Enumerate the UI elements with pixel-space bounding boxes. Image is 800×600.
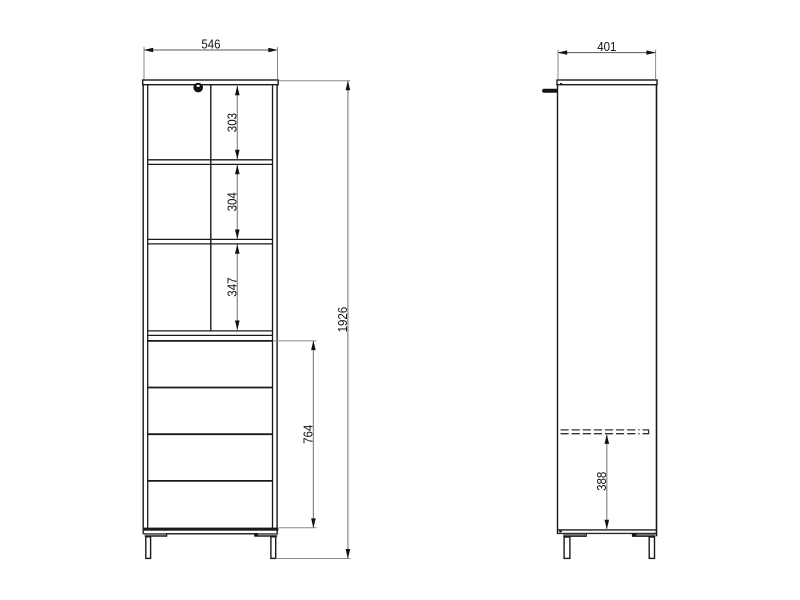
svg-text:303: 303 <box>225 113 240 132</box>
svg-text:388: 388 <box>594 472 609 491</box>
svg-text:401: 401 <box>597 39 616 54</box>
svg-text:546: 546 <box>201 37 220 52</box>
svg-text:1926: 1926 <box>335 307 350 333</box>
svg-text:304: 304 <box>225 192 240 211</box>
svg-text:347: 347 <box>225 278 240 297</box>
svg-text:764: 764 <box>301 425 316 444</box>
